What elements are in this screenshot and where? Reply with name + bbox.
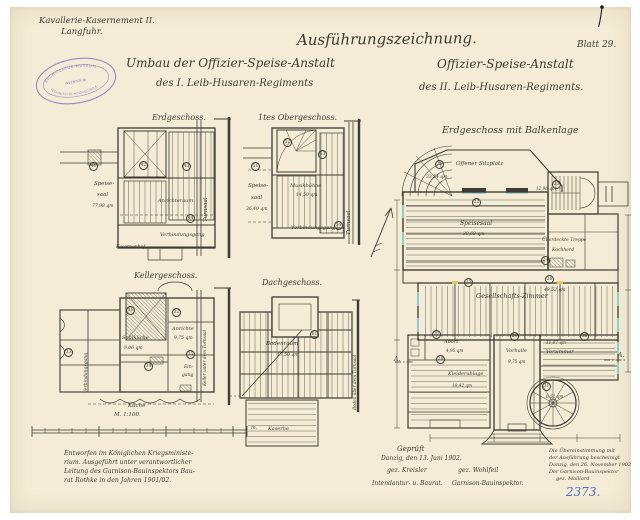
signature-1-role: Intendantur- u. Baurat. — [372, 481, 443, 487]
plan-dachgeschoss-I-linework — [230, 297, 360, 446]
plan1-speisesaal-1: Speise- — [94, 182, 114, 188]
signature-2: gez. Wohlfeil — [458, 468, 498, 475]
plan5-room-mark: 30 — [580, 332, 589, 341]
plan4-boden-halle: Boden über dem Turnsaal — [353, 355, 357, 410]
plan5-room-mark: 28 — [436, 355, 445, 364]
plan5-room-mark: 24 — [541, 256, 550, 265]
sheet-number: Blatt 29. — [577, 41, 616, 50]
plan2-room-mark: 54 — [334, 221, 343, 230]
plan3-room-mark: 35 — [186, 350, 195, 359]
confirmation-line5: gez. Maillard — [556, 477, 589, 482]
confirmation-line4: Der Garnison-Bauinspektor — [549, 470, 618, 475]
scale-unit: m. — [251, 426, 257, 431]
plan2-room-mark: 53 — [318, 150, 327, 159]
plan3-keller-halle: Keller unter dem Turnsaal — [203, 330, 207, 386]
plan5-room-mark: 25 — [464, 278, 473, 287]
plan3-anrichte: Anrichte — [172, 327, 194, 332]
plan2-title: 1tes Obergeschoss. — [258, 114, 337, 122]
plan5-kleiderablage: Kleiderablage — [448, 372, 483, 377]
plan-erdgeschoss-I-linework — [60, 117, 231, 260]
plan5-wendeltreppe-area: 6,52 qm — [546, 395, 563, 399]
plan5-abort-area: 4,95 qm — [446, 349, 463, 353]
plan2-speisesaal-area: 36,40 qm — [246, 208, 267, 213]
plan5-speisesaal-area: 39,68 qm — [463, 233, 484, 238]
plan1-speisesaal-2: saal — [97, 193, 108, 199]
plan2-turnsaal: Turnsaal — [347, 210, 353, 235]
design-note-line4: rat Rothke in den Jahren 1901/02. — [64, 478, 171, 485]
plan4-title: Dachgeschoss. — [262, 279, 322, 287]
scale-label: M. 1:100. — [114, 413, 141, 419]
plan2-musikbuehne: Musikbühne — [290, 184, 321, 189]
plan5-vorhalle-area: 9,75 qm — [508, 360, 525, 364]
plan3-anrichte-area: 9,75 qm — [174, 337, 193, 342]
plan1-kasernenhof: Kasernenhof — [116, 246, 145, 251]
confirmation-line2: der Ausführung bescheinigt — [549, 456, 620, 461]
confirmation-line1: Die Übereinstimmung mit — [549, 449, 615, 454]
plan5-vorzimmer-area: 11,07 qm — [546, 341, 566, 345]
title-regiment-I-line1: Umbau der Offizier-Speise-Anstalt — [126, 57, 335, 70]
plan2-musikbuehne-area: 14,50 qm — [296, 194, 317, 199]
plan5-ueberdeckte-treppe: Überdeckte Treppe — [542, 239, 586, 244]
approval-place-date: Danzig, den 13. Juni 1902. — [381, 456, 462, 462]
plan5-vorzimmer: Vorzimmer — [546, 350, 574, 355]
plan5-room-mark: 26 — [545, 275, 554, 284]
plan5-kochherd: Kochherd — [552, 249, 574, 254]
plan1-turnsaal: Turnsaal — [204, 197, 210, 222]
plan1-room-mark: 42 — [139, 161, 148, 170]
plan5-room-mark: 27 — [432, 330, 441, 339]
site-line2: Langfuhr. — [61, 28, 103, 37]
museum-stamp: ARCHITEKTUR-MUSEUM INVENTAR-Nr. TECHNISC… — [33, 52, 119, 109]
plan5-abort: Abort — [444, 340, 458, 345]
plan3-room-mark: 34 — [144, 362, 153, 371]
plan4-bodenraum: Bodenraum — [266, 342, 298, 348]
plan4-kaserne: Kaserne — [268, 427, 289, 432]
plan3-eingang-1: Ein- — [184, 366, 193, 371]
plan1-room-mark: 41 — [89, 162, 98, 171]
plan1-verbindungsgang: Verbindungsgang — [160, 233, 205, 238]
plan5-room-mark: 31 — [542, 382, 551, 391]
plan1-room-mark: 43 — [182, 162, 191, 171]
plan2-speisesaal-2: saal — [251, 196, 262, 202]
plan5-sitzplatz-area: 33,54 qm — [426, 176, 447, 181]
plan5-gesellschaftszimmer: Gesellschafts-Zimmer — [476, 293, 548, 300]
plan3-spuelkueche-area: 9,06 qm — [124, 347, 143, 352]
confirmation-line3: Danzig, den 26. November 1902 — [549, 463, 631, 468]
design-note-line2: rium. Ausgeführt unter verantwortlicher — [64, 460, 191, 467]
north-arrow — [371, 208, 393, 257]
drawing-type-title: Ausführungszeichnung. — [297, 31, 477, 49]
approval-geprueft: Geprüft — [397, 446, 424, 453]
inventory-number: 2373. — [566, 486, 600, 499]
plan5-speisesaal: Speisesaal — [460, 221, 492, 227]
plan3-kueche: Küche — [128, 404, 145, 410]
plan5-kleiderablage-area: 10,92 qm — [452, 384, 472, 388]
plan3-verbindungsgang: Verbindungsgang — [85, 353, 90, 393]
plan1-anrichteraum: Anrichteraum — [158, 199, 193, 204]
scale-bar — [32, 426, 247, 437]
design-note-line3: Leitung des Garnison-Bauinspektors Bau- — [64, 469, 195, 476]
stamp-mid-text: INVENTAR-Nr. — [65, 78, 88, 86]
plan5-room-mark: 29 — [510, 332, 519, 341]
plan3-eingang-2: gang — [182, 374, 193, 379]
title-regiment-II-line1: Offizier-Speise-Anstalt — [437, 58, 574, 71]
pin-mark — [599, 5, 604, 27]
plan3-room-mark: 33 — [64, 348, 73, 357]
site-line1: Kavallerie-Kasernement II. — [39, 17, 155, 26]
design-note-line1: Entworfen im Königlichen Kriegsministe- — [64, 451, 193, 458]
plan5-section-mark-right: A. — [618, 353, 624, 359]
plan1-speisesaal-area: 77,98 qm — [92, 205, 113, 210]
title-regiment-I-line2: des I. Leib-Husaren-Regiments — [156, 79, 313, 90]
plan5-section-mark-left: A. — [394, 357, 400, 363]
plan4-bodenraum-area: 17,50 qm — [277, 354, 298, 359]
signature-2-role: Garnison-Bauinspektor. — [452, 481, 523, 487]
plan2-speisesaal-1: Speise- — [248, 184, 268, 190]
plan3-spuelkueche: Spülküche — [122, 336, 149, 341]
plan5-room-mark: 23 — [552, 180, 561, 189]
plan3-title: Kellergeschoss. — [134, 272, 197, 280]
plan5-gesellschaftszimmer-area: 49,52 qm — [544, 289, 565, 294]
plan3-room-mark: 32 — [172, 308, 181, 317]
plan2-room-mark: 52 — [283, 138, 292, 147]
plan2-room-mark: 51 — [251, 162, 260, 171]
plan5-room-mark: 21 — [435, 160, 444, 169]
plan5-room-mark: 22 — [472, 198, 481, 207]
title-regiment-II-line2: des II. Leib-Husaren-Regiments. — [419, 83, 583, 94]
plan4-room-mark: 61 — [310, 330, 319, 339]
plan1-title: Erdgeschoss. — [152, 114, 206, 122]
plan2-verbindungsgang: Verbindungsgang — [291, 226, 336, 231]
plan5-sitzplatz: Offener Sitzplatz — [456, 162, 503, 168]
plan1-room-mark: 44 — [186, 214, 195, 223]
signature-1: gez. Kreisler — [387, 468, 427, 475]
plan5-title: Erdgeschoss mit Balkenlage — [442, 126, 579, 136]
plan3-room-mark: 31 — [126, 306, 135, 315]
plan5-vorhalle: Vorhalle — [506, 349, 527, 354]
